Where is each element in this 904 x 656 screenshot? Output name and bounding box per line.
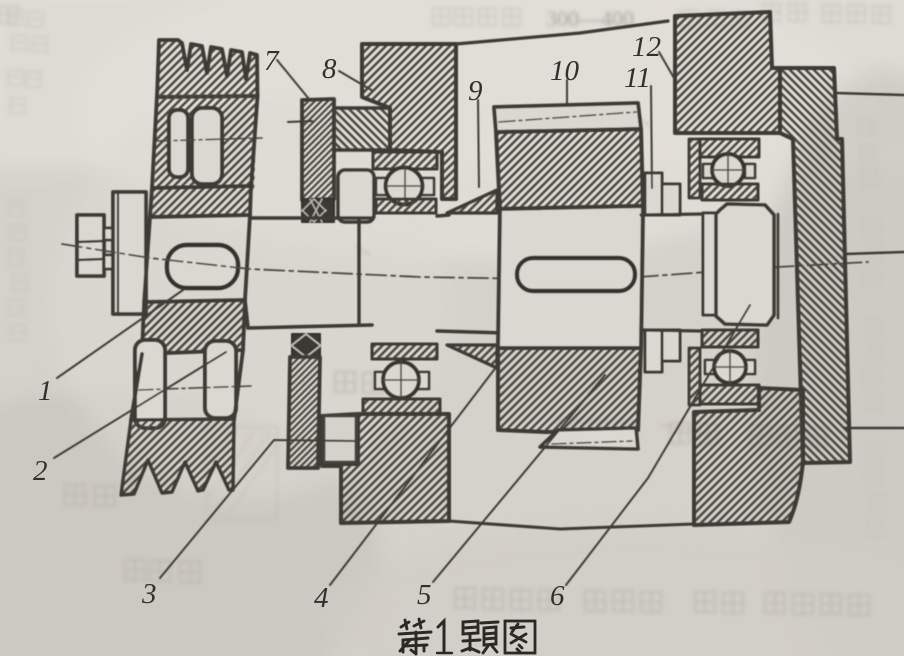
svg-text:6: 6 (550, 580, 565, 612)
svg-text:7: 7 (264, 45, 280, 77)
svg-text:1: 1 (38, 375, 53, 407)
svg-text:11: 11 (624, 62, 651, 94)
svg-text:8: 8 (322, 53, 337, 85)
svg-text:5: 5 (417, 579, 432, 611)
svg-text:4: 4 (314, 582, 329, 614)
svg-text:12: 12 (632, 31, 661, 63)
svg-text:10: 10 (550, 55, 580, 87)
svg-text:9: 9 (468, 75, 483, 107)
svg-text:3: 3 (141, 578, 157, 610)
svg-text:2: 2 (33, 455, 48, 487)
